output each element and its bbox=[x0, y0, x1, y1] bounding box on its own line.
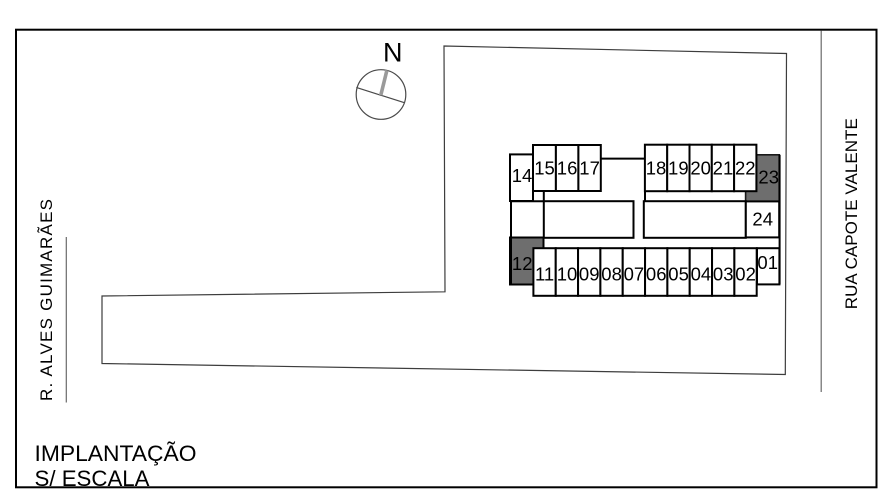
svg-text:14: 14 bbox=[512, 165, 533, 186]
svg-text:09: 09 bbox=[579, 263, 600, 284]
svg-text:03: 03 bbox=[713, 263, 734, 284]
svg-text:S/ ESCALA: S/ ESCALA bbox=[35, 466, 150, 491]
svg-text:02: 02 bbox=[735, 263, 756, 284]
svg-text:07: 07 bbox=[624, 263, 645, 284]
svg-text:11: 11 bbox=[535, 263, 554, 284]
svg-text:12: 12 bbox=[512, 253, 533, 274]
svg-text:04: 04 bbox=[691, 263, 712, 284]
svg-text:RUA CAPOTE VALENTE: RUA CAPOTE VALENTE bbox=[842, 118, 861, 309]
svg-text:R. ALVES GUIMARÃES: R. ALVES GUIMARÃES bbox=[37, 199, 56, 401]
svg-text:17: 17 bbox=[579, 157, 600, 178]
svg-text:15: 15 bbox=[534, 157, 555, 178]
svg-text:06: 06 bbox=[646, 263, 667, 284]
svg-text:22: 22 bbox=[735, 157, 756, 178]
svg-text:16: 16 bbox=[557, 157, 578, 178]
svg-text:18: 18 bbox=[646, 157, 667, 178]
svg-text:20: 20 bbox=[690, 157, 711, 178]
svg-text:10: 10 bbox=[557, 263, 578, 284]
svg-text:N: N bbox=[383, 38, 403, 68]
svg-text:IMPLANTAÇÃO: IMPLANTAÇÃO bbox=[35, 441, 197, 466]
svg-text:21: 21 bbox=[713, 157, 734, 178]
svg-text:19: 19 bbox=[668, 157, 689, 178]
svg-text:24: 24 bbox=[752, 209, 773, 230]
svg-text:08: 08 bbox=[601, 263, 622, 284]
svg-text:05: 05 bbox=[668, 263, 689, 284]
svg-text:01: 01 bbox=[757, 252, 778, 273]
svg-text:23: 23 bbox=[758, 167, 779, 188]
